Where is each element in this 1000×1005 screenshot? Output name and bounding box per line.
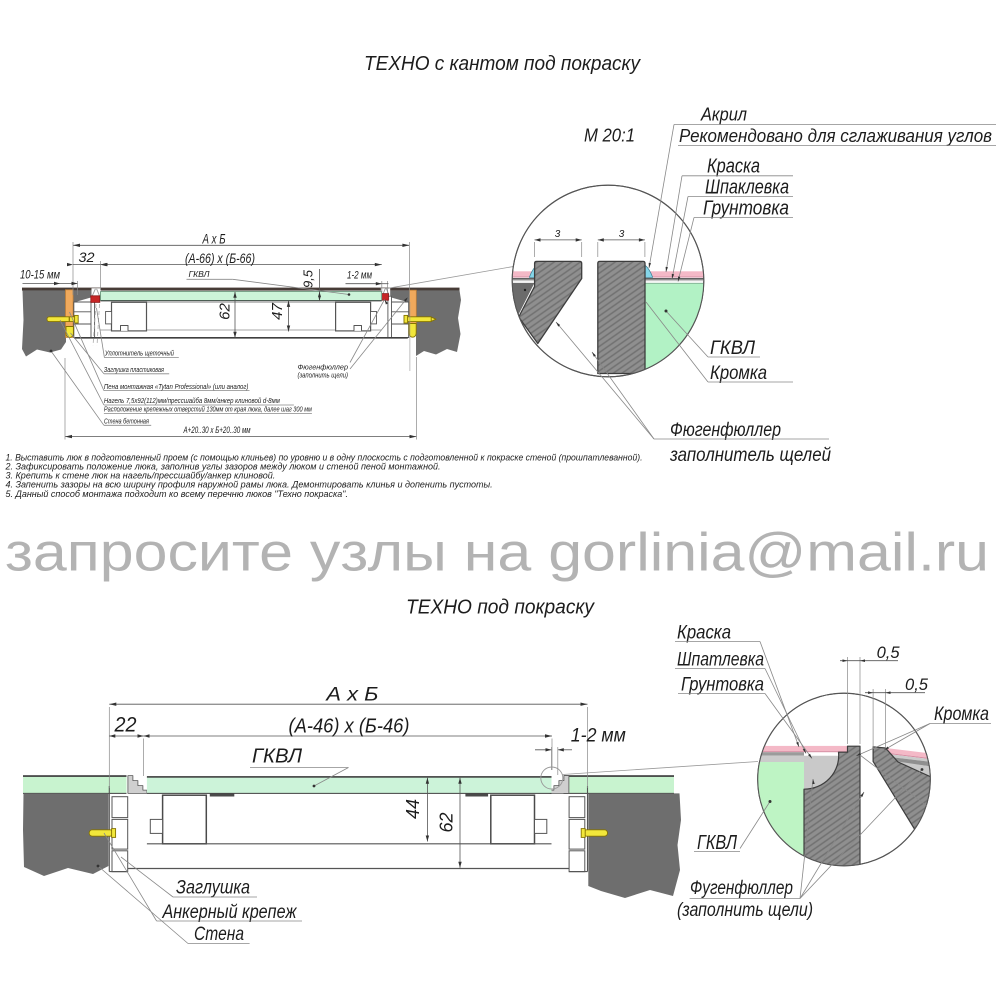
svg-text:44: 44 (403, 799, 423, 819)
svg-text:3: 3 (555, 229, 561, 240)
svg-text:ГКВЛ: ГКВЛ (189, 270, 211, 279)
svg-text:47: 47 (269, 303, 286, 320)
svg-text:запросите узлы на gorlinia@mai: запросите узлы на gorlinia@mail.ru (5, 523, 989, 583)
svg-text:Шпатлевка: Шпатлевка (677, 649, 764, 671)
svg-text:М 20:1: М 20:1 (584, 126, 635, 146)
svg-text:Рекомендовано для сглаживания: Рекомендовано для сглаживания углов (679, 126, 992, 146)
svg-text:Анкерный крепеж: Анкерный крепеж (162, 901, 298, 923)
svg-text:ГКВЛ: ГКВЛ (252, 746, 302, 768)
svg-text:ГКВЛ: ГКВЛ (710, 338, 756, 359)
svg-text:1-2 мм: 1-2 мм (347, 269, 372, 281)
svg-text:Кромка: Кромка (710, 363, 767, 384)
svg-text:0,5: 0,5 (905, 675, 929, 694)
svg-text:А+20..30 х Б+20..30 мм: А+20..30 х Б+20..30 мм (183, 425, 251, 436)
svg-text:Стена: Стена (194, 923, 244, 945)
svg-text:Кромка: Кромка (934, 703, 989, 725)
svg-text:Грунтовка: Грунтовка (681, 674, 764, 696)
svg-text:62: 62 (217, 303, 234, 320)
svg-text:А х Б: А х Б (202, 231, 226, 246)
svg-text:заполнитель щелей: заполнитель щелей (669, 445, 831, 466)
svg-text:Грунтовка: Грунтовка (703, 198, 789, 220)
svg-text:Акрил: Акрил (700, 105, 747, 125)
svg-text:0,5: 0,5 (877, 643, 901, 662)
svg-text:Фюгенфюллер: Фюгенфюллер (670, 420, 781, 441)
svg-text:(заполнить щели): (заполнить щели) (298, 371, 349, 380)
svg-text:62: 62 (437, 812, 457, 832)
svg-text:ТЕХНО с кантом под покраску: ТЕХНО с кантом под покраску (364, 52, 642, 75)
svg-text:32: 32 (79, 249, 95, 265)
svg-text:ТЕХНО под покраску: ТЕХНО под покраску (406, 597, 595, 619)
svg-text:Стена бетонная: Стена бетонная (104, 416, 149, 425)
svg-text:Уплотнитель щеточный: Уплотнитель щеточный (104, 349, 174, 358)
svg-text:9,5: 9,5 (301, 269, 316, 288)
svg-text:3: 3 (619, 229, 625, 240)
svg-text:22: 22 (114, 713, 137, 736)
svg-text:Расположение крепежных отверст: Расположение крепежных отверстий 130мм о… (104, 405, 312, 414)
svg-text:Фугенфюллер: Фугенфюллер (690, 877, 793, 899)
svg-text:Краска: Краска (707, 156, 760, 178)
svg-text:10-15 мм: 10-15 мм (20, 268, 60, 282)
svg-text:Заглушка: Заглушка (176, 877, 250, 899)
svg-text:(А-46) х (Б-46): (А-46) х (Б-46) (289, 716, 410, 738)
svg-text:Заглушка пластиковая: Заглушка пластиковая (104, 365, 164, 374)
svg-text:5. Данный способ монтажа подхо: 5. Данный способ монтажа подходит ко все… (6, 489, 348, 499)
svg-text:А х Б: А х Б (325, 683, 378, 705)
svg-text:Шпаклевка: Шпаклевка (705, 177, 789, 199)
svg-text:Краска: Краска (677, 622, 731, 644)
svg-text:1-2 мм: 1-2 мм (571, 726, 626, 747)
svg-text:(заполнить щели): (заполнить щели) (677, 899, 813, 921)
svg-text:(А-66) х (Б-66): (А-66) х (Б-66) (185, 251, 255, 266)
svg-text:ГКВЛ: ГКВЛ (697, 832, 737, 854)
svg-text:Пена монтажная «Tytan Professi: Пена монтажная «Tytan Professional» (или… (104, 382, 249, 391)
